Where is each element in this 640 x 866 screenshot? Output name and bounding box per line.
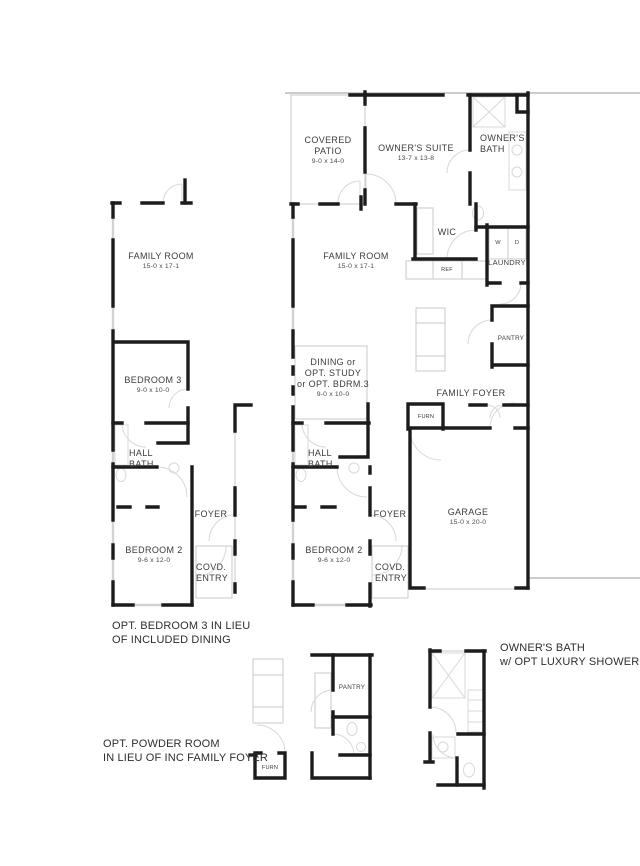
powder-detail-walls <box>250 655 372 778</box>
powder-detail-thin-lines <box>253 659 331 728</box>
foyer-label: FOYER <box>374 509 407 520</box>
wic-label: WIC <box>438 227 457 238</box>
alt-family-room-label: FAMILY ROOM 15-0 x 17-1 <box>128 251 194 271</box>
dining-opt-study-label: DINING or OPT. STUDY or OPT. BDRM.3 9-0 … <box>297 357 369 399</box>
ref-label: REF <box>441 267 453 274</box>
main-plan-walls <box>291 92 528 606</box>
owners-bath-label: OWNER'S BATH <box>480 133 525 155</box>
family-room-label: FAMILY ROOM 15-0 x 17-1 <box>323 251 389 271</box>
toilet-fixture <box>473 206 484 220</box>
detail-furnace-label: FURN <box>262 765 278 772</box>
laundry-label: LAUNDRY <box>488 258 526 267</box>
detail-pantry-label: PANTRY <box>339 684 365 692</box>
tub-fixture <box>115 425 128 465</box>
washer-label: W <box>495 240 500 247</box>
dryer-label: D <box>515 240 519 247</box>
hall-bath-label: HALL BATH <box>308 448 333 470</box>
bath-detail-walls <box>425 650 485 788</box>
alt-bedroom-2-label: BEDROOM 2 9-6 x 12-0 <box>125 545 182 565</box>
alt-covered-entry-label: COVD. ENTRY <box>196 562 228 584</box>
alt-plan-caption: OPT. BEDROOM 3 IN LIEU OF INCLUDED DININ… <box>112 620 250 647</box>
bedroom-2-label: BEDROOM 2 9-6 x 12-0 <box>305 545 362 565</box>
alt-hall-bath-label: HALL BATH <box>129 448 154 470</box>
alt-foyer-label: FOYER <box>195 509 228 520</box>
pantry-label: PANTRY <box>498 335 524 343</box>
covered-entry-label: COVD. ENTRY <box>375 562 407 584</box>
furnace-label: FURN <box>418 414 434 421</box>
owners-suite-label: OWNER'S SUITE 13-7 x 13-8 <box>378 143 454 163</box>
floor-plan-sheet: COVERED PATIO 9-0 x 14-0 OWNER'S SUITE 1… <box>0 0 640 866</box>
floor-plan-drawing <box>0 0 640 866</box>
family-foyer-label: FAMILY FOYER <box>437 388 506 399</box>
powder-room-caption: OPT. POWDER ROOM IN LIEU OF INC FAMILY F… <box>103 738 268 765</box>
toilet-fixture <box>464 763 475 777</box>
vanity-fixture <box>432 737 455 758</box>
covered-patio-label: COVERED PATIO 9-0 x 14-0 <box>305 135 352 166</box>
toilet-fixture <box>347 723 357 736</box>
tub-fixture <box>295 425 308 465</box>
garage-label: GARAGE 15-0 x 20-0 <box>448 507 489 527</box>
alt-bedroom-3-label: BEDROOM 3 9-0 x 10-0 <box>124 375 181 395</box>
owners-bath-detail-caption: OWNER'S BATH w/ OPT LUXURY SHOWER <box>500 642 639 669</box>
